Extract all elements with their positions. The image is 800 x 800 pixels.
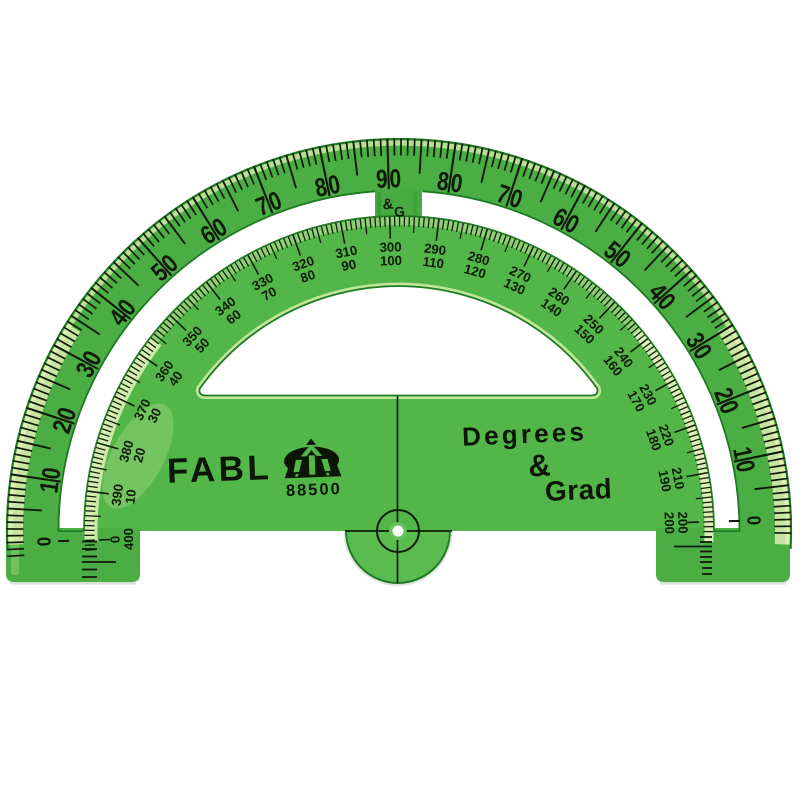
- svg-text:200: 200: [662, 512, 678, 534]
- svg-text:90: 90: [340, 256, 357, 273]
- svg-text:400: 400: [121, 528, 137, 550]
- svg-text:10: 10: [122, 488, 139, 504]
- svg-text:Degrees: Degrees: [461, 416, 587, 451]
- svg-text:88500: 88500: [286, 480, 342, 500]
- svg-text:0: 0: [743, 515, 764, 525]
- svg-text:FABL: FABL: [166, 448, 273, 491]
- svg-text:110: 110: [422, 254, 445, 272]
- svg-text:&: &: [382, 196, 394, 214]
- svg-text:9: 9: [376, 164, 388, 193]
- svg-text:0: 0: [389, 164, 401, 193]
- svg-text:0: 0: [34, 536, 55, 546]
- svg-text:100: 100: [380, 253, 402, 269]
- svg-text:G: G: [394, 203, 406, 220]
- svg-text:Grad: Grad: [544, 473, 613, 507]
